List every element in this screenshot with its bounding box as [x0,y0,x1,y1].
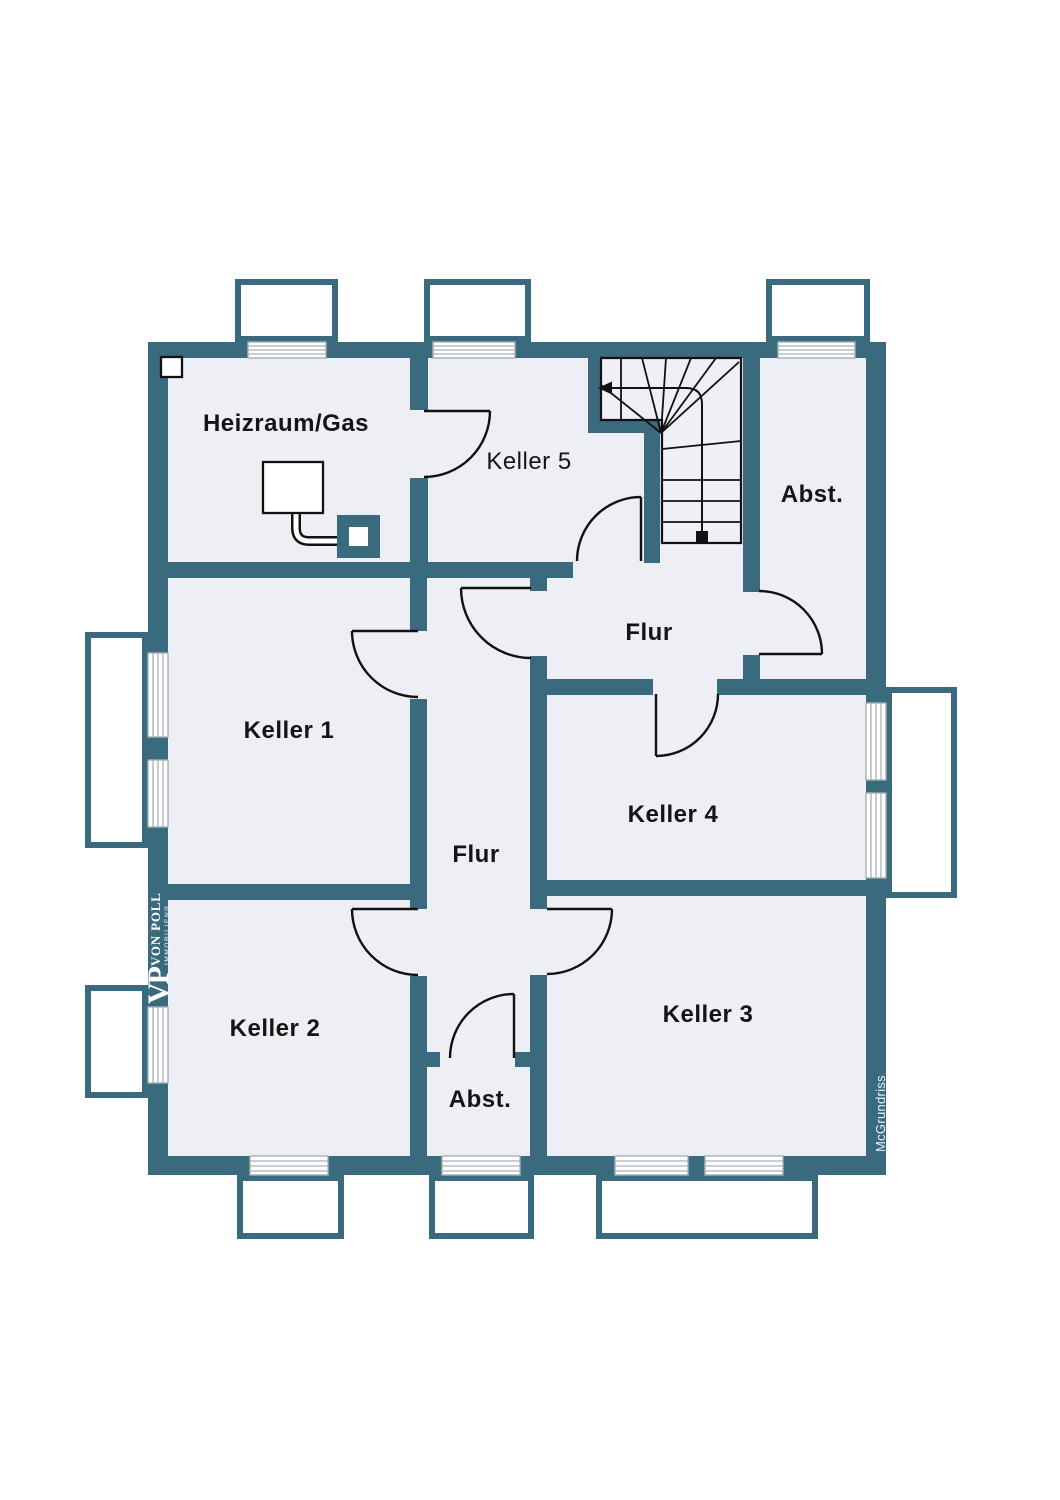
wall-segment [717,679,866,695]
room-label-abst-oben: Abst. [781,481,844,508]
light-well [432,1178,531,1236]
light-well [88,635,145,845]
room-label-abst-unten: Abst. [449,1086,512,1113]
light-well [88,988,145,1095]
wall-segment [546,679,653,695]
wall-segment [410,577,427,631]
wall-segment [168,884,410,900]
wall-segment [530,975,547,1052]
brand-monogram: VP [142,966,175,1004]
wall-segment [644,433,660,563]
window [615,1156,688,1175]
window [250,1156,328,1175]
wall-segment [410,1052,440,1067]
room-label-keller3: Keller 3 [663,1001,754,1028]
wall-segment [530,577,547,591]
wall-segment [410,358,428,410]
room-label-keller5: Keller 5 [486,448,571,475]
window [705,1156,783,1175]
vent-shaft-icon [161,357,182,377]
window [778,342,855,358]
credit-text: McGrundriss [873,1075,888,1152]
stair-start-marker [696,531,708,542]
light-well [238,282,335,339]
light-well [889,690,954,895]
wall-segment [410,1067,427,1156]
plan-credit: McGrundriss [873,1075,888,1152]
window [866,703,886,780]
wall-segment [410,976,427,1052]
window [442,1156,520,1175]
wall-segment [168,562,573,578]
window [148,1007,168,1083]
wall-segment [588,420,660,433]
light-well [599,1178,815,1236]
floor-plan-page: Heizraum/Gas Keller 5 Abst. Flur Keller … [0,0,1060,1500]
window [248,342,326,358]
window [148,653,168,737]
room-label-keller1: Keller 1 [244,717,335,744]
window [433,342,515,358]
wall-segment [588,358,601,420]
wall-segment [530,656,547,909]
room-label-flur-oben: Flur [625,619,672,646]
boiler-icon [263,462,323,513]
wall-segment [410,478,428,564]
window [148,760,168,827]
room-label-flur-mitte: Flur [452,841,499,868]
window [866,793,886,878]
room-label-keller4: Keller 4 [628,801,719,828]
brand-name: VON POLL [148,892,163,966]
wall-segment [743,358,760,592]
light-well [769,282,867,339]
chimney-flue [349,527,368,546]
floor-plan-svg: Heizraum/Gas Keller 5 Abst. Flur Keller … [0,0,1060,1500]
wall-segment [410,699,427,909]
brand-subtitle: IMMOBILIEN® [163,904,171,965]
light-well [427,282,528,339]
brand-logo: VP VON POLL IMMOBILIEN® [142,892,175,1004]
room-label-heizraum: Heizraum/Gas [203,410,369,437]
wall-segment [530,1067,547,1156]
wall-segment [547,880,866,896]
wall-segment [515,1052,547,1067]
light-well [240,1178,341,1236]
room-label-keller2: Keller 2 [230,1015,321,1042]
